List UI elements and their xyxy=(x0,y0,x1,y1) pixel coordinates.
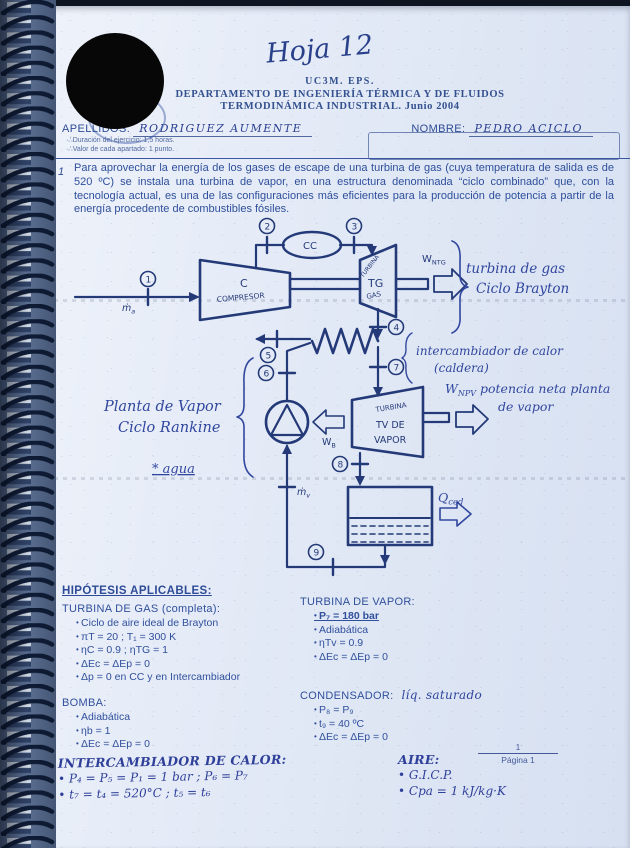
compressor-label: COMPRESOR xyxy=(216,291,265,304)
hx-annotation-line2: (caldera) xyxy=(434,361,489,375)
vapor-turbine-item: P₇ = 180 bar xyxy=(314,610,550,624)
rankine-annotation-line1: Planta de Vapor xyxy=(103,399,222,415)
bomba-hypotheses: BOMBA: Adiabática ηb = 1 ΔEc = ΔEp = 0 xyxy=(62,697,282,752)
state-point-5: 5 xyxy=(261,348,276,363)
condensador-item: t₉ = 40 ºC xyxy=(314,718,550,732)
gas-turbine-label-3: GAS xyxy=(366,290,383,301)
w-b-input-arrow xyxy=(313,410,344,434)
svg-text:5: 5 xyxy=(266,352,272,362)
bomba-item: ΔEc = ΔEp = 0 xyxy=(76,738,282,752)
aire-item: G.I.C.P. xyxy=(398,767,568,783)
spiral-binding-graphic xyxy=(0,0,56,848)
vapor-turbine-item: ΔEc = ΔEp = 0 xyxy=(314,651,550,665)
svg-text:3: 3 xyxy=(352,223,358,233)
state-point-7: 7 xyxy=(389,360,404,375)
rankine-annotation-line2: Ciclo Rankine xyxy=(118,420,220,436)
svg-text:2: 2 xyxy=(265,223,271,233)
q-ced-label: Qced xyxy=(438,490,464,508)
condensador-handwritten-note: líq. saturado xyxy=(401,688,482,702)
page-footer: 1 Página 1 xyxy=(478,743,558,765)
footer-page-label: Página 1 xyxy=(478,753,558,765)
aire-item: Cpa = 1 kJ/kg·K xyxy=(398,783,568,799)
combustion-chamber-label: CC xyxy=(303,241,317,252)
gas-turbine-item: ηC = 0.9 ; ηTG = 1 xyxy=(76,644,302,658)
svg-text:4: 4 xyxy=(394,324,400,334)
redacted-logo-circle xyxy=(66,33,164,129)
steam-turbine-label-3: VAPOR xyxy=(374,435,407,446)
cycle-diagram: C COMPRESOR CC TURBINA TG GAS WNTG turbi… xyxy=(60,215,630,590)
condensador-hypotheses: CONDENSADOR:líq. saturado P₈ = P₉ t₉ = 4… xyxy=(300,688,550,745)
condensador-item: P₈ = P₉ xyxy=(314,704,550,718)
state-point-4: 4 xyxy=(389,320,404,335)
svg-text:6: 6 xyxy=(264,370,270,380)
gas-turbine-item: πT = 20 ; T₁ = 300 K xyxy=(76,631,302,645)
pump-symbol: WB xyxy=(266,401,344,450)
svg-text:1: 1 xyxy=(146,276,152,286)
problem-statement: Para aprovechar la energía de los gases … xyxy=(74,162,614,217)
condensador-hypotheses-title: CONDENSADOR:líq. saturado xyxy=(300,688,550,702)
bomba-hypotheses-title: BOMBA: xyxy=(62,697,282,709)
course-name: TERMODINÁMICA INDUSTRIAL. Junio 2004 xyxy=(120,101,560,112)
vapor-turbine-item: Adiabática xyxy=(314,624,550,638)
brayton-annotation-line1: turbina de gas xyxy=(466,261,565,277)
vapor-turbine-hypotheses: TURBINA DE VAPOR: P₇ = 180 bar Adiabátic… xyxy=(300,596,550,664)
steam-turbine-label-1: TURBINA xyxy=(374,401,407,414)
svg-text:8: 8 xyxy=(338,461,344,471)
steam-turbine-symbol: TURBINA TV DE VAPOR xyxy=(352,387,423,457)
gas-turbine-item: Δp = 0 en CC y en Intercambiador xyxy=(76,671,302,685)
condenser-symbol: Qced xyxy=(348,487,471,545)
svg-text:9: 9 xyxy=(314,549,320,559)
gas-turbine-hypotheses-title: TURBINA DE GAS (completa): xyxy=(62,603,302,615)
w-npv-annotation-line2: de vapor xyxy=(498,399,554,414)
gas-turbine-label-2: TG xyxy=(367,277,383,290)
spiral-binding xyxy=(0,0,56,848)
department-name: DEPARTAMENTO DE INGENIERÍA TÉRMICA Y DE … xyxy=(120,89,560,100)
state-point-6: 6 xyxy=(259,366,274,381)
gas-turbine-item: Ciclo de aire ideal de Brayton xyxy=(76,617,302,631)
gas-turbine-hypotheses: TURBINA DE GAS (completa): Ciclo de aire… xyxy=(62,603,302,685)
intercambiador-hypotheses-handwritten: INTERCAMBIADOR DE CALOR: P₄ = P₅ = P₁ = … xyxy=(58,750,369,802)
problem-number: 1 xyxy=(58,166,64,178)
state-point-1: 1 xyxy=(141,272,156,287)
gas-turbine-item: ΔEc = ΔEp = 0 xyxy=(76,658,302,672)
institution-header: UC3M. EPS. DEPARTAMENTO DE INGENIERÍA TÉ… xyxy=(120,76,560,112)
bomba-item: ηb = 1 xyxy=(76,725,282,739)
header-divider xyxy=(52,158,630,159)
gas-turbine-symbol: TURBINA TG GAS xyxy=(358,245,396,317)
compressor-letter: C xyxy=(240,277,248,290)
exam-note-score: Valor de cada apartado: 1 punto. xyxy=(66,145,175,154)
institution-name: UC3M. EPS. xyxy=(120,76,560,87)
vapor-mass-flow-label: ṁv xyxy=(297,487,310,500)
cycle-diagram-svg: C COMPRESOR CC TURBINA TG GAS WNTG turbi… xyxy=(60,215,630,590)
agua-annotation: * agua xyxy=(152,462,195,477)
steam-turbine-label-2: TV DE xyxy=(375,420,405,431)
photo-of-notebook: Hoja 12 UC3M. EPS. DEPARTAMENTO DE INGEN… xyxy=(0,0,630,848)
hx-annotation-line1: intercambiador de calor xyxy=(416,344,564,358)
w-b-label: WB xyxy=(322,437,336,450)
w-npv-output: WNPV potencia neta planta de vapor xyxy=(445,381,610,434)
heat-exchanger-coil xyxy=(312,329,378,353)
state-point-2: 2 xyxy=(260,219,275,234)
w-npv-annotation-line1: WNPV potencia neta planta xyxy=(445,381,610,398)
vapor-turbine-item: ηTv = 0.9 xyxy=(314,637,550,651)
brayton-annotation-line2: Ciclo Brayton xyxy=(476,281,569,297)
footer-numerator: 1 xyxy=(478,743,558,752)
state-point-9: 9 xyxy=(309,545,324,560)
compressor-symbol: C COMPRESOR xyxy=(200,260,290,320)
air-mass-flow-label: ṁa xyxy=(122,303,135,316)
bomba-item: Adiabática xyxy=(76,711,282,725)
heat-exchanger-annotation: intercambiador de calor (caldera) xyxy=(402,333,564,383)
rankine-annotation: Planta de Vapor Ciclo Rankine * agua xyxy=(103,358,253,477)
brayton-annotation: turbina de gas Ciclo Brayton xyxy=(452,241,569,333)
state-point-3: 3 xyxy=(347,219,362,234)
hypotheses-title: HIPÓTESIS APLICABLES: xyxy=(62,585,212,597)
w-ntg-label: WNTG xyxy=(422,254,446,267)
vapor-turbine-hypotheses-title: TURBINA DE VAPOR: xyxy=(300,596,550,608)
svg-text:7: 7 xyxy=(394,364,400,374)
combustion-chamber-symbol: CC xyxy=(283,232,341,258)
exam-info-box xyxy=(368,132,620,160)
state-point-8: 8 xyxy=(333,457,348,472)
